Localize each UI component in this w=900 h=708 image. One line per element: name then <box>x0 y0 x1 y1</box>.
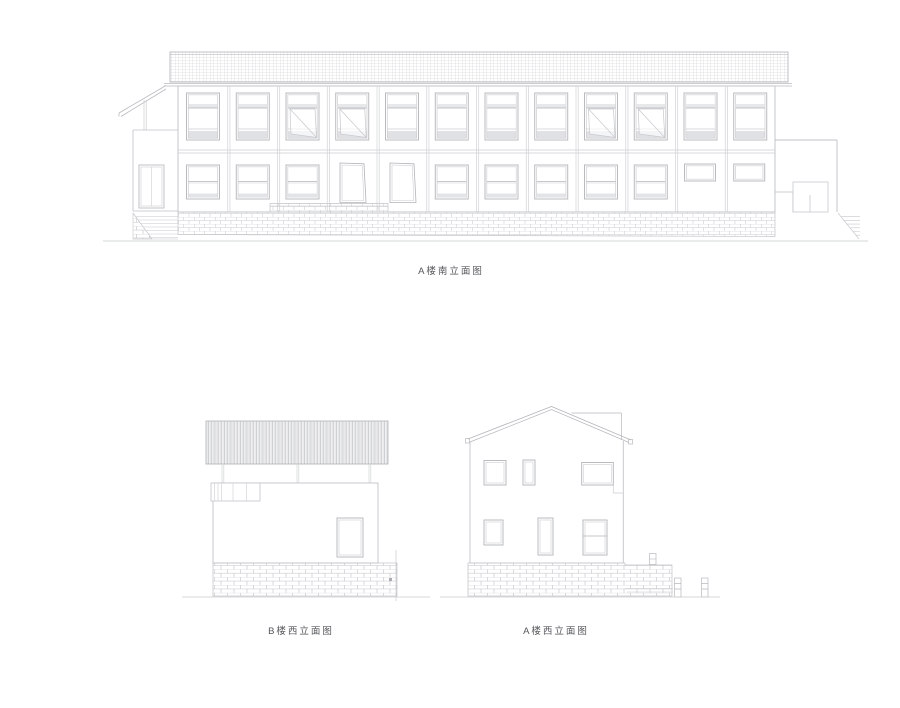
caption-b-west-elevation: B楼西立面图 <box>191 623 411 637</box>
caption-a-south-elevation: A楼南立面图 <box>341 263 561 277</box>
b-west-elevation-drawing <box>182 421 430 601</box>
brick-pillar <box>650 554 657 565</box>
window <box>337 518 363 557</box>
gable-roof <box>466 407 633 445</box>
right-stairs <box>838 213 860 239</box>
tiled-roof <box>164 52 792 86</box>
drawing-sheet: A楼南立面图 B楼西立面图 A楼西立面图 <box>0 0 900 708</box>
brick-base-a-west <box>468 554 708 598</box>
porch-door <box>139 165 164 208</box>
caption-a-west-elevation: A楼西立面图 <box>446 623 666 637</box>
ground-floor-windows <box>484 518 607 555</box>
a-south-elevation-drawing <box>103 52 868 241</box>
wall <box>211 483 378 563</box>
corrugated-roof <box>206 421 388 464</box>
fence-posts <box>675 578 709 597</box>
clerestory-strip <box>211 483 260 501</box>
roof-posts <box>222 464 371 483</box>
left-stairs <box>133 213 178 239</box>
left-entry-porch <box>119 86 178 212</box>
right-annex <box>775 140 837 212</box>
a-west-elevation-drawing <box>440 407 720 598</box>
upper-floor-windows <box>484 460 623 493</box>
elevation-drawings-svg <box>0 0 900 708</box>
